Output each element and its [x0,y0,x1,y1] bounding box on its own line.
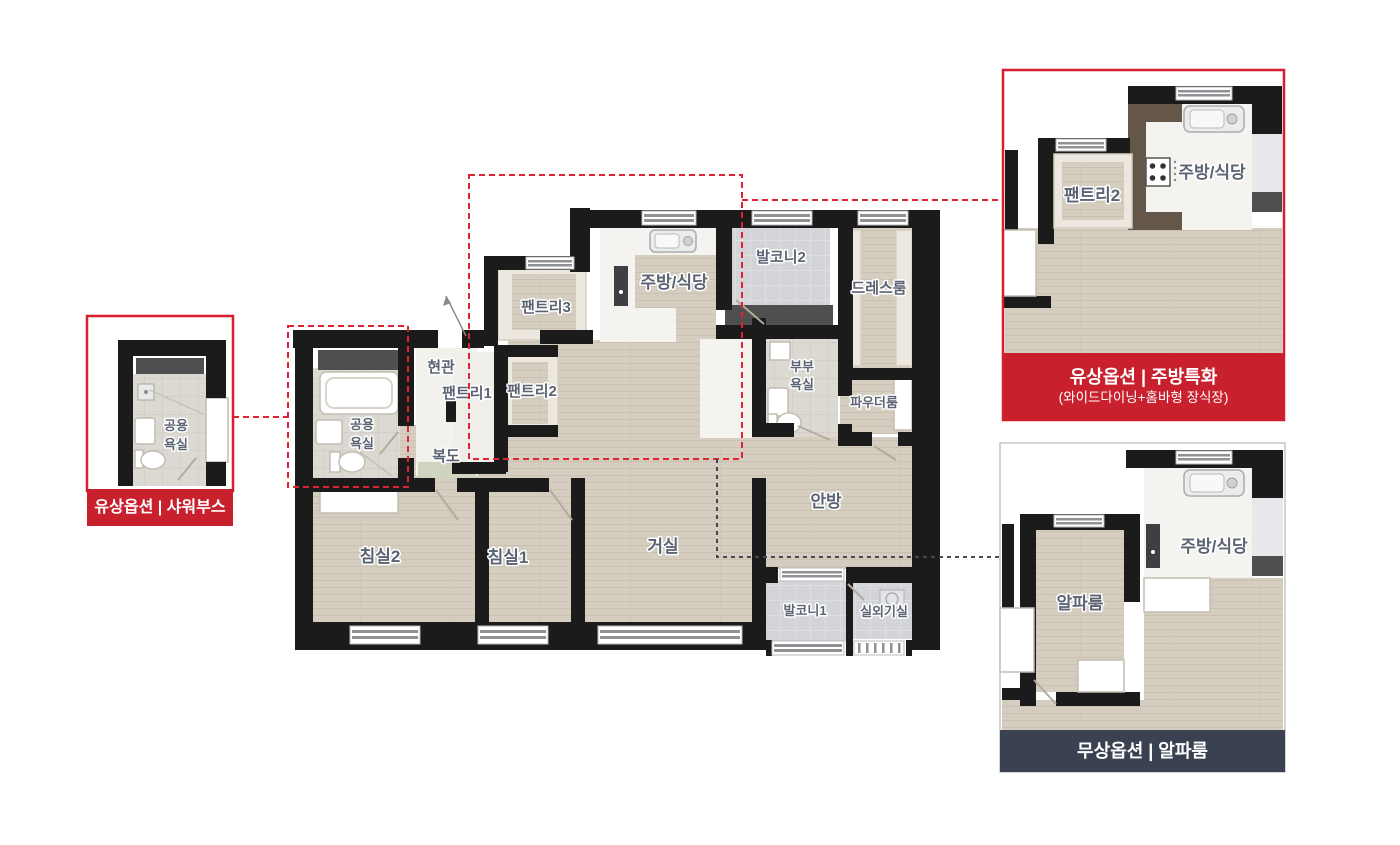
floorplan-scene: 현관 팬트리1 팬트리2 팬트리3 주방/식당 발코니2 드레스룸 부부 욕실 … [0,0,1400,845]
alpha-option-banner-text: 무상옵션 | 알파룸 [1077,740,1208,763]
callout-shower-sink [135,418,155,444]
callout-shower-bath-label-2: 욕실 [164,437,188,452]
room-label-common-bath-1: 공용 [350,417,374,432]
room-label-bedroom1: 침실1 [488,547,529,567]
callout-alpha-plan: 알파룸 주방/식당 [1000,443,1285,772]
room-label-living: 거실 [647,537,678,556]
room-label-dressroom: 드레스룸 [851,280,906,297]
room-label-master: 안방 [810,492,842,511]
callout-shower-bath-label-1: 공용 [164,418,188,433]
callout-shower-plan: 공용 욕실 [87,316,233,491]
master-bath-sink [768,388,788,416]
refrigerator [614,266,628,306]
callout-alpha-fridge [1146,524,1160,568]
callout-shower-toilet [141,451,165,469]
room-label-master-bath-1: 부부 [790,359,814,374]
room-label-bedroom2: 침실2 [360,546,401,566]
entry-arrow [443,296,466,336]
toilet [339,452,365,472]
callout-kitchen-pantry2-label: 팬트리2 [1064,186,1120,205]
floorplan-infographic: 현관 팬트리1 팬트리2 팬트리3 주방/식당 발코니2 드레스룸 부부 욕실 … [0,0,1400,845]
washer [770,342,790,360]
room-label-corridor: 복도 [432,448,460,465]
bath-sink [316,420,342,444]
alpha-desk [1078,660,1124,692]
kitchen-option-banner: 유상옵션 | 주방특화 (와이드다이닝+홈바형 장식장) [1003,353,1284,420]
room-label-kitchen: 주방/식당 [640,273,708,292]
room-label-master-bath-2: 욕실 [790,377,814,392]
room-label-common-bath-2: 욕실 [350,436,374,451]
alpha-option-banner: 무상옵션 | 알파룸 [1000,730,1285,772]
room-label-balcony2: 발코니2 [756,249,806,266]
room-label-powder: 파우더룸 [850,395,898,410]
shower-option-banner-text: 유상옵션 | 샤워부스 [94,498,225,518]
callout-alpha-kitchen-label: 주방/식당 [1180,537,1248,556]
room-label-pantry3: 팬트리3 [521,299,571,316]
callout-alpha-room-label: 알파룸 [1057,594,1104,613]
main-floorplan: 현관 팬트리1 팬트리2 팬트리3 주방/식당 발코니2 드레스룸 부부 욕실 … [293,208,940,656]
room-label-pantry2: 팬트리2 [507,383,557,400]
room-label-balcony1: 발코니1 [783,603,826,618]
shower-option-banner: 유상옵션 | 샤워부스 [87,489,233,526]
bath-window-band [318,350,400,370]
kitchen-option-banner-title: 유상옵션 | 주방특화 [1070,366,1218,389]
kitchen-option-banner-subtitle: (와이드다이닝+홈바형 장식장) [1059,390,1229,407]
callout-kitchen-kitchen-label: 주방/식당 [1178,163,1246,182]
room-label-outdoor-unit: 실외기실 [860,604,908,619]
room-label-entrance: 현관 [427,359,455,376]
room-label-pantry1: 팬트리1 [442,385,492,402]
